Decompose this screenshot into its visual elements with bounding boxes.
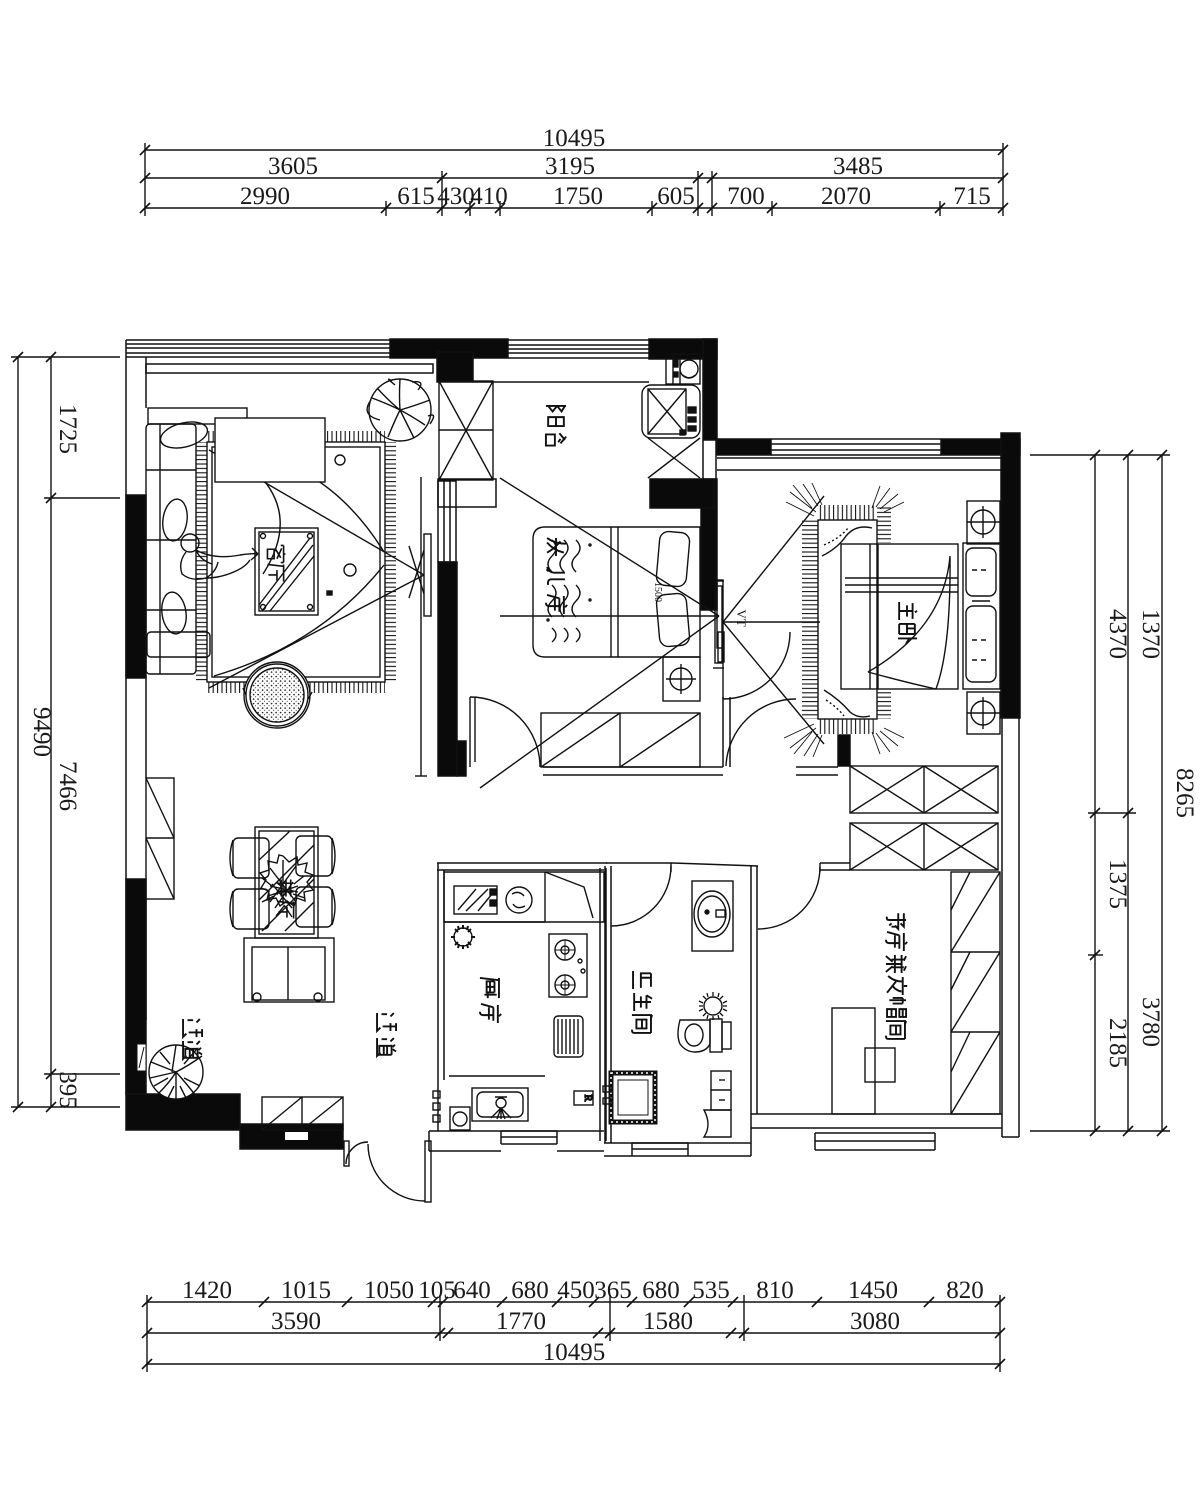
svg-text:VT: VT (734, 609, 749, 626)
svg-text:105: 105 (418, 1277, 456, 1304)
svg-text:3195: 3195 (545, 153, 595, 180)
svg-text:1370: 1370 (1137, 609, 1164, 659)
svg-text:2070: 2070 (821, 183, 871, 210)
svg-text:2185: 2185 (1104, 1018, 1131, 1068)
svg-text:640: 640 (453, 1277, 491, 1304)
svg-text:395: 395 (54, 1071, 81, 1109)
svg-text:820: 820 (946, 1277, 984, 1304)
svg-text:7466: 7466 (54, 761, 81, 811)
svg-text:1050: 1050 (364, 1277, 414, 1304)
svg-text:700: 700 (727, 183, 765, 210)
svg-text:535: 535 (692, 1277, 730, 1304)
svg-text:715: 715 (953, 183, 991, 210)
svg-text:9490: 9490 (28, 707, 55, 757)
svg-text:1580: 1580 (643, 1308, 693, 1335)
svg-text:810: 810 (756, 1277, 794, 1304)
svg-text:615: 615 (397, 183, 435, 210)
svg-text:3780: 3780 (1137, 997, 1164, 1047)
svg-text:3605: 3605 (268, 153, 318, 180)
svg-text:410: 410 (470, 183, 508, 210)
svg-text:1770: 1770 (496, 1308, 546, 1335)
svg-text:450: 450 (557, 1277, 595, 1304)
svg-text:680: 680 (511, 1277, 549, 1304)
svg-text:10495: 10495 (543, 125, 606, 152)
svg-text:R: R (582, 1095, 593, 1102)
svg-text:8265: 8265 (1171, 768, 1198, 818)
svg-text:680: 680 (642, 1277, 680, 1304)
svg-text:1750: 1750 (553, 183, 603, 210)
svg-text:1375: 1375 (1104, 859, 1131, 909)
svg-text:3590: 3590 (271, 1308, 321, 1335)
svg-text:3485: 3485 (833, 153, 883, 180)
svg-text:10495: 10495 (543, 1339, 606, 1366)
svg-text:1725: 1725 (54, 404, 81, 454)
svg-text:2990: 2990 (240, 183, 290, 210)
svg-text:3080: 3080 (850, 1308, 900, 1335)
svg-text:430: 430 (437, 183, 475, 210)
svg-text:1420: 1420 (182, 1277, 232, 1304)
svg-text:1015: 1015 (281, 1277, 331, 1304)
svg-text:4370: 4370 (1104, 609, 1131, 659)
svg-text:1450: 1450 (848, 1277, 898, 1304)
svg-text:365: 365 (594, 1277, 632, 1304)
svg-text:1500: 1500 (652, 582, 663, 602)
svg-text:605: 605 (657, 183, 695, 210)
